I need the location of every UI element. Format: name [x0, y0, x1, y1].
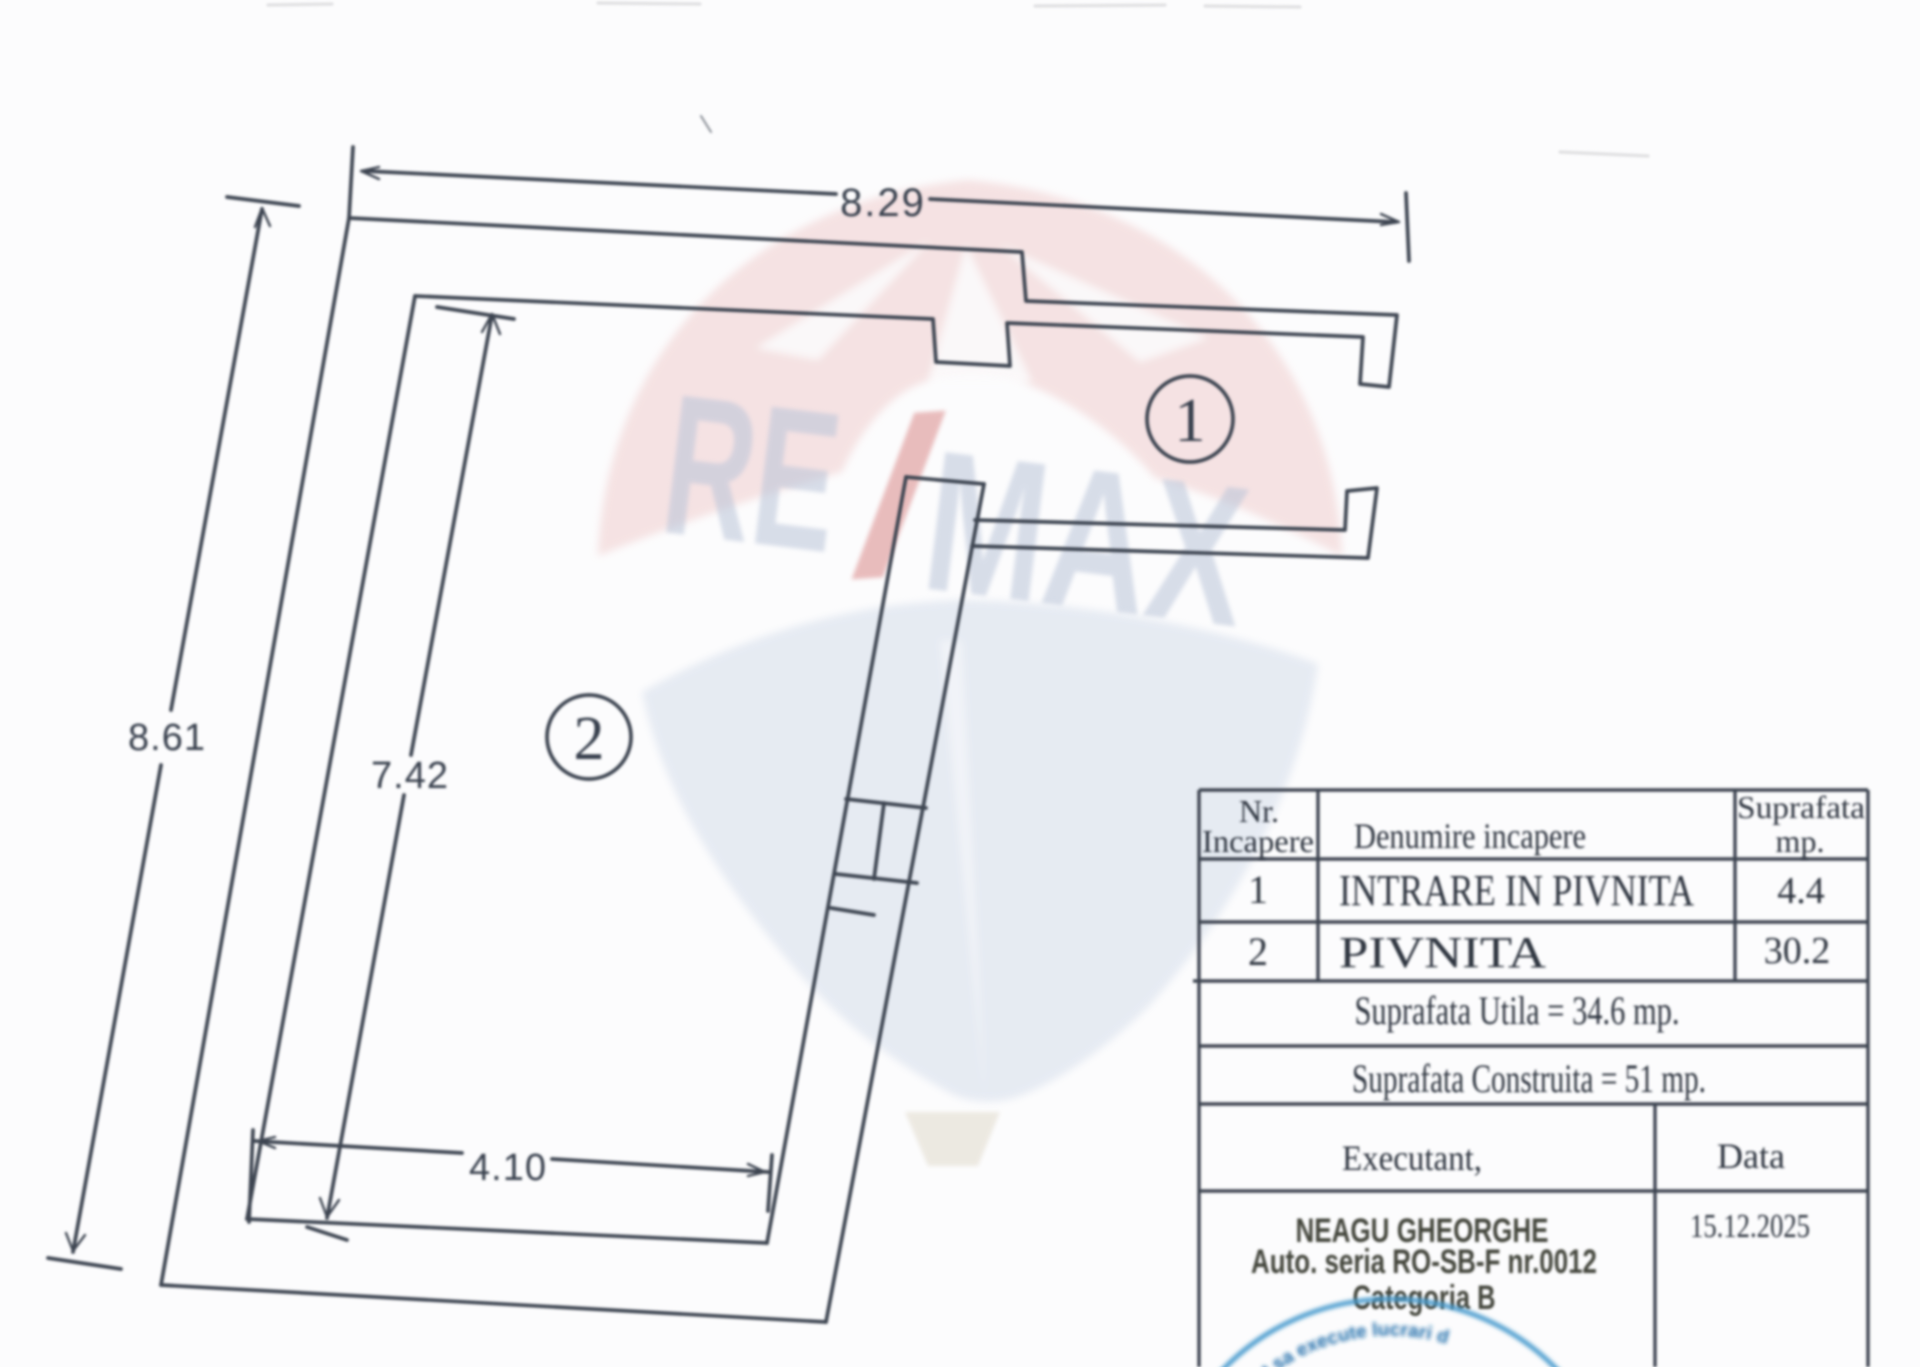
- svg-text:4.4: 4.4: [1777, 870, 1825, 912]
- svg-text:Data: Data: [1717, 1136, 1785, 1176]
- svg-text:7.42: 7.42: [371, 755, 449, 797]
- svg-text:30.2: 30.2: [1764, 930, 1831, 972]
- svg-text:1: 1: [1248, 867, 1268, 912]
- svg-text:Suprafata Construita = 51 mp.: Suprafata Construita = 51 mp.: [1352, 1056, 1706, 1101]
- svg-text:PIVNITA: PIVNITA: [1339, 928, 1546, 977]
- svg-text:Suprafata Utila = 34.6 mp.: Suprafata Utila = 34.6 mp.: [1355, 988, 1680, 1033]
- svg-text:2: 2: [574, 705, 605, 773]
- svg-text:4.10: 4.10: [469, 1147, 547, 1189]
- svg-text:Auto. seria RO-SB-F nr.0012: Auto. seria RO-SB-F nr.0012: [1251, 1243, 1597, 1281]
- svg-text:INTRARE IN PIVNITA: INTRARE IN PIVNITA: [1339, 866, 1694, 915]
- svg-text:8.29: 8.29: [840, 181, 926, 225]
- svg-text:2: 2: [1248, 929, 1268, 974]
- svg-text:MAX: MAX: [914, 408, 1259, 669]
- svg-text:8.61: 8.61: [128, 717, 206, 759]
- svg-text:1: 1: [1175, 387, 1206, 455]
- svg-text:15.12.2025: 15.12.2025: [1690, 1208, 1810, 1245]
- svg-text:Suprafata: Suprafata: [1737, 789, 1865, 825]
- svg-text:Denumire incapere: Denumire incapere: [1354, 816, 1586, 856]
- svg-text:mp.: mp.: [1776, 823, 1825, 859]
- svg-text:RE: RE: [653, 352, 851, 595]
- svg-text:Executant,: Executant,: [1342, 1138, 1482, 1178]
- svg-text:Incapere: Incapere: [1202, 823, 1314, 859]
